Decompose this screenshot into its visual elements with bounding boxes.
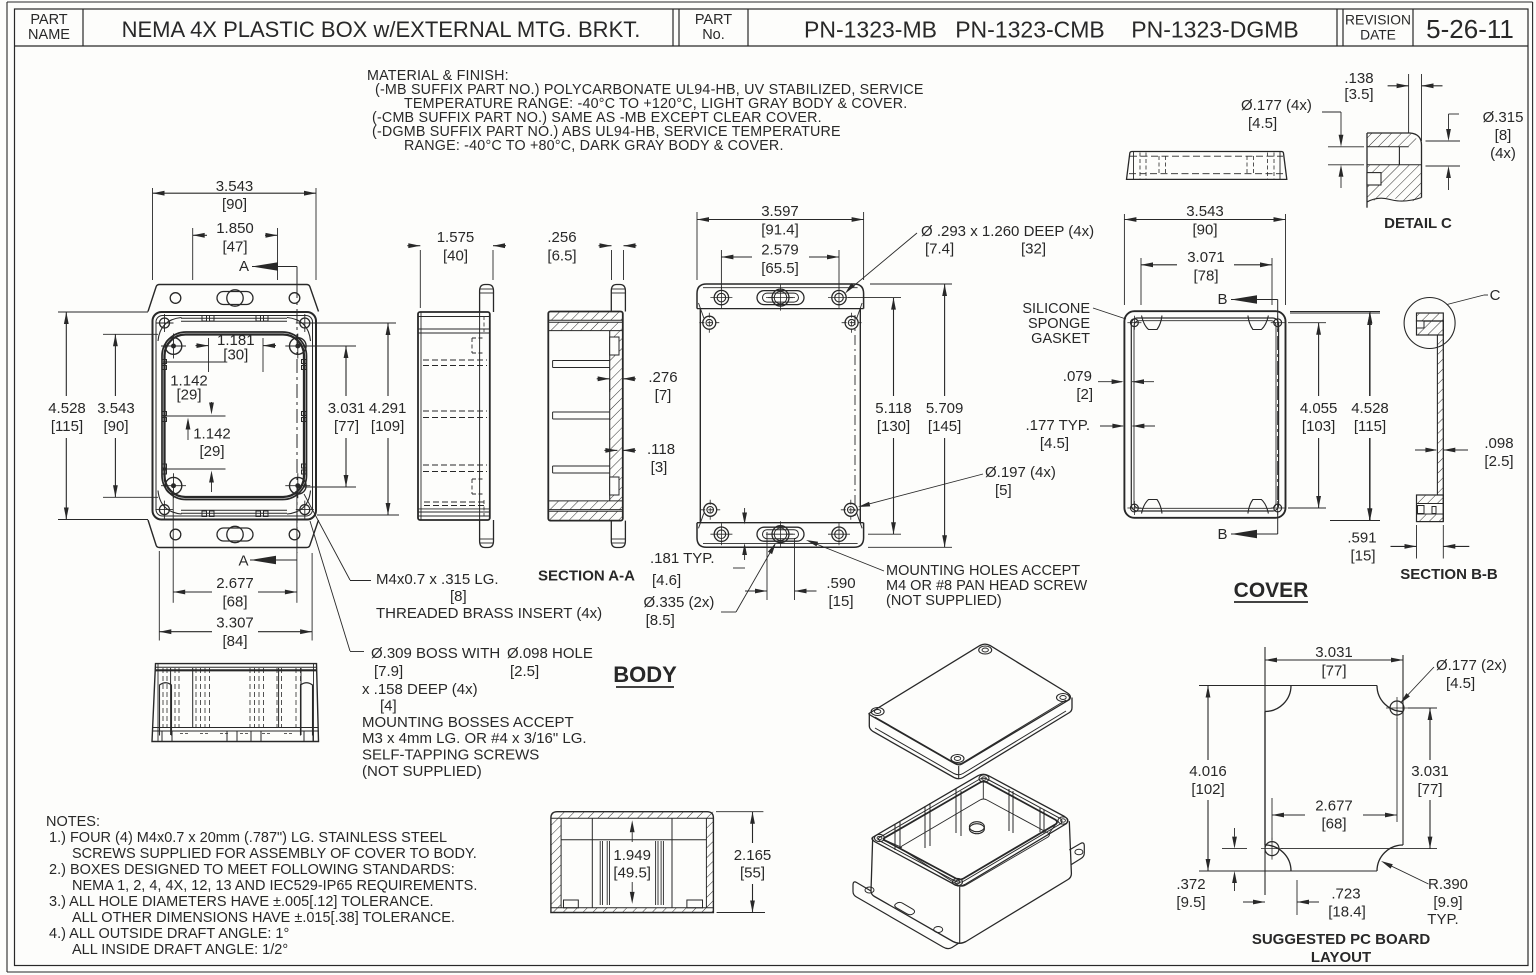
svg-text:SECTION B-B: SECTION B-B: [1400, 566, 1498, 583]
svg-text:[77]: [77]: [334, 418, 359, 435]
svg-text:[115]: [115]: [1354, 418, 1386, 435]
svg-text:1.949: 1.949: [613, 847, 651, 864]
svg-text:[49.5]: [49.5]: [613, 865, 651, 882]
svg-text:.372: .372: [1176, 876, 1205, 893]
svg-text:[15]: [15]: [828, 593, 853, 610]
svg-text:[3]: [3]: [651, 459, 668, 476]
svg-text:No.: No.: [702, 27, 725, 43]
svg-text:[84]: [84]: [222, 633, 247, 650]
svg-text:3.031: 3.031: [328, 400, 366, 417]
svg-text:[7.4]: [7.4]: [925, 241, 954, 258]
svg-text:5.118: 5.118: [875, 400, 911, 417]
svg-text:2.165: 2.165: [734, 847, 772, 864]
svg-text:1.142: 1.142: [193, 426, 231, 443]
svg-text:SECTION A-A: SECTION A-A: [538, 568, 635, 585]
svg-text:MOUNTING BOSSES ACCEPT: MOUNTING BOSSES ACCEPT: [362, 714, 574, 731]
svg-text:(NOT SUPPLIED): (NOT SUPPLIED): [886, 593, 1002, 609]
svg-text:B: B: [1217, 291, 1227, 308]
svg-text:[15]: [15]: [1350, 548, 1375, 565]
svg-text:.181 TYP.: .181 TYP.: [650, 550, 715, 567]
svg-text:M3 x 4mm LG. OR #4 x 3/16" LG.: M3 x 4mm LG. OR #4 x 3/16" LG.: [362, 730, 587, 747]
svg-text:[109]: [109]: [371, 418, 404, 435]
svg-text:SELF-TAPPING SCREWS: SELF-TAPPING SCREWS: [362, 747, 539, 764]
svg-text:[40]: [40]: [443, 248, 468, 265]
svg-text:.177 TYP.: .177 TYP.: [1026, 417, 1091, 434]
svg-text:[68]: [68]: [1321, 816, 1346, 833]
svg-text:Ø.315: Ø.315: [1483, 109, 1524, 126]
svg-text:5-26-11: 5-26-11: [1426, 14, 1514, 44]
svg-text:Ø.177 (4x): Ø.177 (4x): [1241, 97, 1312, 114]
svg-text:.723: .723: [1331, 886, 1360, 903]
svg-text:2.677: 2.677: [216, 575, 254, 592]
svg-text:BODY: BODY: [613, 662, 677, 687]
svg-text:[7.9]: [7.9]: [374, 663, 403, 680]
svg-text:2.579: 2.579: [761, 242, 799, 259]
svg-text:3.) ALL HOLE DIAMETERS HAVE ±: 3.) ALL HOLE DIAMETERS HAVE ±.005[.12] T…: [49, 894, 434, 910]
svg-text:[3.5]: [3.5]: [1344, 86, 1373, 103]
svg-text:[2.5]: [2.5]: [1484, 453, 1513, 470]
svg-text:[4]: [4]: [380, 698, 397, 715]
svg-text:REVISION: REVISION: [1345, 13, 1411, 28]
svg-text:[102]: [102]: [1191, 781, 1224, 798]
svg-text:.098: .098: [1484, 435, 1513, 452]
svg-text:[47]: [47]: [222, 239, 247, 256]
svg-text:A: A: [238, 553, 248, 570]
svg-text:[145]: [145]: [928, 418, 961, 435]
svg-text:[4.5]: [4.5]: [1040, 435, 1069, 452]
svg-text:[77]: [77]: [1321, 663, 1346, 680]
svg-text:3.031: 3.031: [1315, 644, 1353, 661]
svg-text:.118: .118: [647, 441, 675, 458]
svg-text:3.071: 3.071: [1187, 249, 1225, 266]
svg-text:PART: PART: [695, 12, 732, 28]
svg-text:[90]: [90]: [222, 196, 247, 213]
svg-text:[65.5]: [65.5]: [761, 260, 799, 277]
svg-text:[103]: [103]: [1302, 418, 1335, 435]
svg-text:[8.5]: [8.5]: [646, 612, 675, 629]
svg-text:DETAIL C: DETAIL C: [1384, 215, 1452, 232]
svg-text:4.291: 4.291: [369, 400, 407, 417]
svg-text:[68]: [68]: [222, 594, 247, 611]
svg-text:(NOT SUPPLIED): (NOT SUPPLIED): [362, 763, 482, 780]
svg-text:COVER: COVER: [1234, 579, 1309, 602]
svg-text:4.528: 4.528: [48, 400, 86, 417]
svg-text:RANGE: -40°C TO +80°C, DARK GR: RANGE: -40°C TO +80°C, DARK GRAY BODY & …: [404, 138, 784, 154]
svg-text:ALL OTHER DIMENSIONS HAVE ±.01: ALL OTHER DIMENSIONS HAVE ±.015[.38] TOL…: [72, 910, 455, 926]
svg-text:PN-1323-CMB: PN-1323-CMB: [955, 17, 1105, 43]
svg-text:[4.5]: [4.5]: [1446, 675, 1475, 692]
svg-text:Ø.177 (2x): Ø.177 (2x): [1436, 657, 1507, 674]
svg-text:GASKET: GASKET: [1031, 331, 1090, 347]
svg-text:[77]: [77]: [1417, 781, 1442, 798]
svg-text:M4x0.7 x .315 LG.: M4x0.7 x .315 LG.: [376, 571, 499, 588]
svg-text:LAYOUT: LAYOUT: [1311, 949, 1371, 966]
svg-text:[29]: [29]: [176, 387, 201, 404]
svg-text:2.677: 2.677: [1315, 798, 1353, 815]
svg-text:4.528: 4.528: [1351, 400, 1389, 417]
svg-text:.256: .256: [547, 229, 576, 246]
svg-text:1.) FOUR (4) M4x0.7 x 20mm (.: 1.) FOUR (4) M4x0.7 x 20mm (.787") LG. S…: [49, 830, 447, 846]
svg-text:[4.5]: [4.5]: [1248, 115, 1277, 132]
svg-text:[2.5]: [2.5]: [510, 663, 539, 680]
svg-text:3.307: 3.307: [216, 615, 254, 632]
svg-text:PN-1323-MB: PN-1323-MB: [804, 17, 937, 43]
svg-text:4.055: 4.055: [1300, 400, 1338, 417]
svg-text:PART: PART: [30, 12, 67, 28]
svg-text:4.) ALL OUTSIDE DRAFT ANGLE:: 4.) ALL OUTSIDE DRAFT ANGLE: 1°: [49, 926, 289, 942]
svg-text:[5]: [5]: [995, 482, 1012, 499]
svg-text:2.) BOXES DESIGNED TO MEET FO: 2.) BOXES DESIGNED TO MEET FOLLOWING STA…: [49, 862, 455, 878]
svg-text:B: B: [1217, 526, 1227, 543]
svg-text:3.543: 3.543: [216, 178, 254, 195]
svg-text:[8]: [8]: [1495, 127, 1512, 144]
svg-text:SPONGE: SPONGE: [1028, 316, 1090, 332]
svg-text:SCREWS SUPPLIED FOR ASSEMBLY O: SCREWS SUPPLIED FOR ASSEMBLY OF COVER TO…: [72, 846, 477, 862]
svg-text:NEMA 1, 2, 4, 4X, 12, 13 AND I: NEMA 1, 2, 4, 4X, 12, 13 AND IEC529-IP65…: [72, 878, 477, 894]
svg-text:Ø.335 (2x): Ø.335 (2x): [644, 594, 715, 611]
svg-text:[90]: [90]: [1192, 222, 1217, 239]
svg-text:THREADED BRASS INSERT (4x): THREADED BRASS INSERT (4x): [376, 605, 602, 622]
svg-text:Ø.309 BOSS WITH: Ø.309 BOSS WITH: [371, 645, 500, 662]
svg-text:[4.6]: [4.6]: [652, 572, 681, 589]
svg-text:[55]: [55]: [740, 865, 765, 882]
svg-text:.079: .079: [1063, 368, 1092, 385]
svg-text:3.543: 3.543: [97, 400, 135, 417]
svg-text:NEMA 4X PLASTIC BOX w/EXTERNAL: NEMA 4X PLASTIC BOX w/EXTERNAL MTG. BRKT…: [122, 17, 641, 42]
svg-text:TYP.: TYP.: [1427, 911, 1458, 928]
svg-text:3.597: 3.597: [761, 203, 799, 220]
svg-text:[32]: [32]: [1021, 241, 1046, 258]
svg-text:Ø .293 x 1.260 DEEP (4x): Ø .293 x 1.260 DEEP (4x): [921, 223, 1094, 240]
svg-text:[8]: [8]: [450, 588, 467, 605]
svg-text:MOUNTING HOLES ACCEPT: MOUNTING HOLES ACCEPT: [886, 563, 1080, 579]
svg-text:NAME: NAME: [28, 27, 70, 43]
svg-text:x .158 DEEP (4x): x .158 DEEP (4x): [362, 681, 478, 698]
svg-text:[30]: [30]: [223, 347, 248, 364]
svg-text:.590: .590: [826, 575, 855, 592]
svg-text:C: C: [1490, 287, 1501, 304]
svg-text:[6.5]: [6.5]: [547, 248, 576, 265]
svg-text:[90]: [90]: [103, 418, 128, 435]
svg-text:3.031: 3.031: [1411, 763, 1449, 780]
svg-text:NOTES:: NOTES:: [46, 814, 100, 830]
svg-text:4.016: 4.016: [1189, 763, 1227, 780]
svg-text:.138: .138: [1344, 70, 1373, 87]
svg-text:DATE: DATE: [1360, 28, 1396, 43]
svg-text:[29]: [29]: [199, 443, 224, 460]
svg-text:[78]: [78]: [1193, 268, 1218, 285]
svg-text:5.709: 5.709: [926, 400, 964, 417]
svg-text:Ø.197 (4x): Ø.197 (4x): [985, 464, 1056, 481]
svg-text:[9.9]: [9.9]: [1433, 894, 1462, 911]
svg-text:[18.4]: [18.4]: [1328, 904, 1366, 921]
svg-text:[115]: [115]: [51, 418, 83, 435]
svg-text:.276: .276: [648, 369, 677, 386]
svg-text:ALL INSIDE DRAFT ANGLE: 1/2°: ALL INSIDE DRAFT ANGLE: 1/2°: [72, 942, 288, 958]
svg-text:M4 OR #8 PAN HEAD SCREW: M4 OR #8 PAN HEAD SCREW: [886, 578, 1087, 594]
svg-text:1.850: 1.850: [216, 220, 254, 237]
svg-text:[2]: [2]: [1076, 386, 1093, 403]
svg-text:3.543: 3.543: [1186, 203, 1224, 220]
svg-text:[7]: [7]: [655, 387, 672, 404]
svg-text:PN-1323-DGMB: PN-1323-DGMB: [1131, 17, 1298, 43]
svg-text:(4x): (4x): [1490, 145, 1516, 162]
svg-text:.591: .591: [1347, 530, 1376, 547]
svg-text:R.390: R.390: [1428, 876, 1468, 893]
svg-text:[9.5]: [9.5]: [1176, 894, 1205, 911]
svg-text:A: A: [239, 258, 249, 275]
svg-text:SILICONE: SILICONE: [1022, 301, 1090, 317]
svg-text:Ø.098 HOLE: Ø.098 HOLE: [507, 645, 593, 662]
svg-text:SUGGESTED PC BOARD: SUGGESTED PC BOARD: [1252, 931, 1431, 948]
svg-text:1.575: 1.575: [437, 229, 475, 246]
svg-text:[91.4]: [91.4]: [761, 222, 799, 239]
svg-text:[130]: [130]: [877, 418, 910, 435]
